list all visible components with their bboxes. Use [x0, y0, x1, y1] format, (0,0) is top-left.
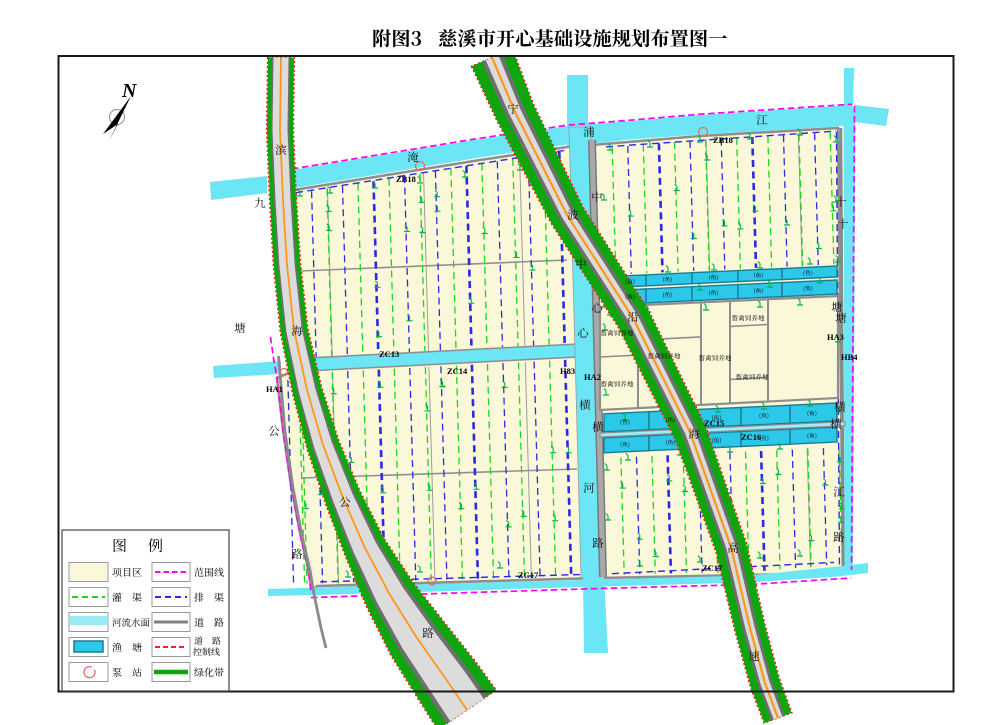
svg-text:ZC17: ZC17	[702, 563, 723, 573]
svg-text:ZC13: ZC13	[379, 349, 399, 359]
svg-text:ZC17: ZC17	[518, 570, 539, 580]
svg-text:ZC14: ZC14	[447, 366, 468, 376]
svg-text:N: N	[121, 80, 138, 102]
svg-text:H83: H83	[560, 366, 575, 376]
svg-text:ZC16: ZC16	[741, 432, 761, 442]
svg-text:HA3: HA3	[827, 332, 844, 342]
svg-text:HB4: HB4	[841, 352, 858, 362]
svg-text:ZC15: ZC15	[704, 418, 724, 428]
svg-text:ZB18: ZB18	[713, 135, 733, 145]
svg-text:HA1: HA1	[266, 384, 283, 394]
svg-text:ZB18: ZB18	[396, 174, 416, 184]
svg-text:HA2: HA2	[584, 372, 601, 382]
